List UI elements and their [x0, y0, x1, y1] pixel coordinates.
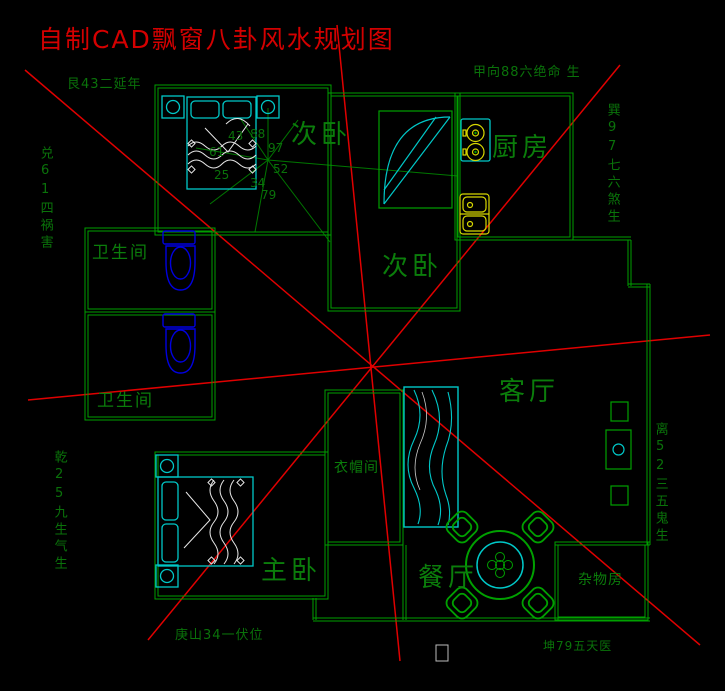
bagua-number-52: 52	[273, 163, 288, 176]
entry-door-mark	[436, 645, 448, 661]
wardrobe-icon	[379, 111, 452, 208]
label-geng-34: 庚山34一伏位	[175, 629, 264, 643]
label-living-room: 客厅	[499, 379, 559, 406]
bed-master	[156, 455, 253, 587]
label-kun-79: 坤79五天医	[543, 640, 612, 653]
label-dining-room: 餐厅	[418, 565, 478, 592]
label-dui-61: 兑61四祸害	[38, 146, 52, 252]
toilet-icon-1	[163, 231, 195, 290]
blanket-fold	[184, 492, 210, 548]
sink-icon	[460, 194, 489, 234]
label-master-bedroom: 主卧	[261, 558, 321, 585]
hall-cabinet-icon	[404, 387, 458, 527]
bagua-number-79: 79	[261, 189, 276, 202]
bagua-number-43: 43	[228, 130, 243, 143]
label-li-52: 离52三五鬼生	[653, 422, 667, 545]
label-qian-25: 乾25九生气生	[52, 450, 66, 573]
label-bathroom-2: 卫生间	[97, 393, 154, 411]
cad-floorplan-canvas: 自制CAD飘窗八卦风水规划图 艮43二延年 甲向88六绝命 生 兑61四祸害 巽…	[0, 0, 725, 691]
label-cloakroom: 衣帽间	[334, 461, 379, 476]
drawing-title: 自制CAD飘窗八卦风水规划图	[38, 27, 395, 53]
label-gen-43: 艮43二延年	[67, 78, 142, 92]
label-storage-room: 杂物房	[578, 573, 623, 588]
tv-wall-units	[606, 402, 631, 505]
label-bedroom2-a: 次卧	[291, 122, 351, 149]
bagua-number-97: 97	[268, 142, 283, 155]
label-jia-88: 甲向88六绝命 生	[473, 66, 581, 80]
label-kitchen: 厨房	[492, 135, 552, 162]
stove-icon	[461, 119, 490, 161]
walls	[85, 85, 650, 621]
label-bathroom-1: 卫生间	[92, 245, 149, 263]
blanket-arc	[226, 118, 250, 126]
bagua-number-25: 25	[214, 169, 229, 182]
bagua-number-88: 88	[250, 128, 265, 141]
bagua-number-61: 61	[209, 146, 224, 159]
label-xun-97: 巽97七六煞生	[605, 103, 619, 226]
red-line-diagonal	[25, 70, 700, 645]
toilet-icon-2	[163, 314, 195, 373]
label-bedroom2-b: 次卧	[382, 254, 442, 281]
